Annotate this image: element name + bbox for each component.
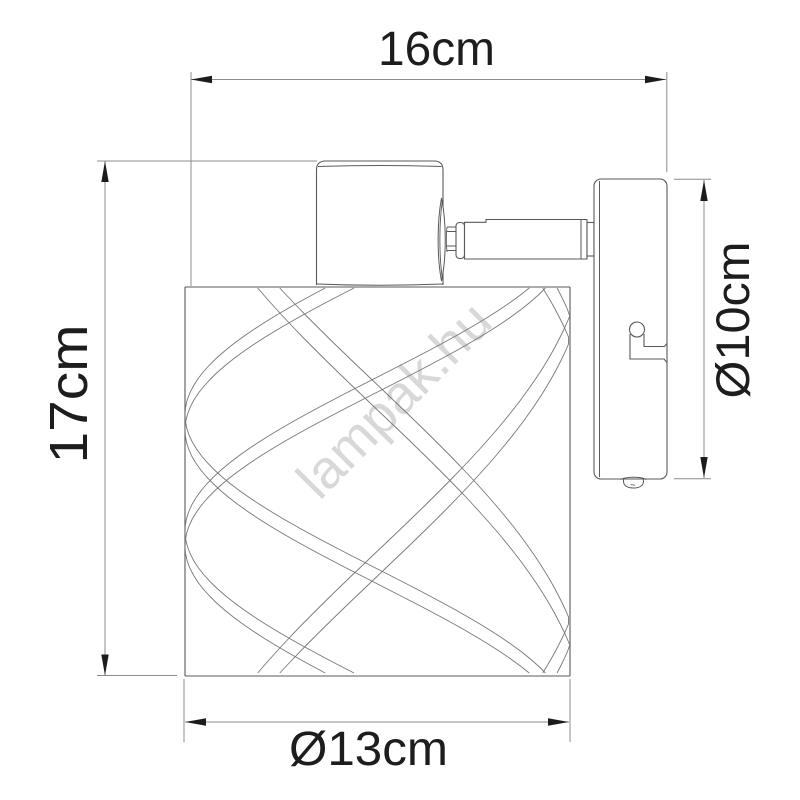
svg-text:Ø13cm: Ø13cm — [289, 723, 448, 776]
svg-text:16cm: 16cm — [378, 23, 495, 76]
svg-text:17cm: 17cm — [40, 325, 99, 464]
svg-text:Ø10cm: Ø10cm — [706, 242, 759, 399]
